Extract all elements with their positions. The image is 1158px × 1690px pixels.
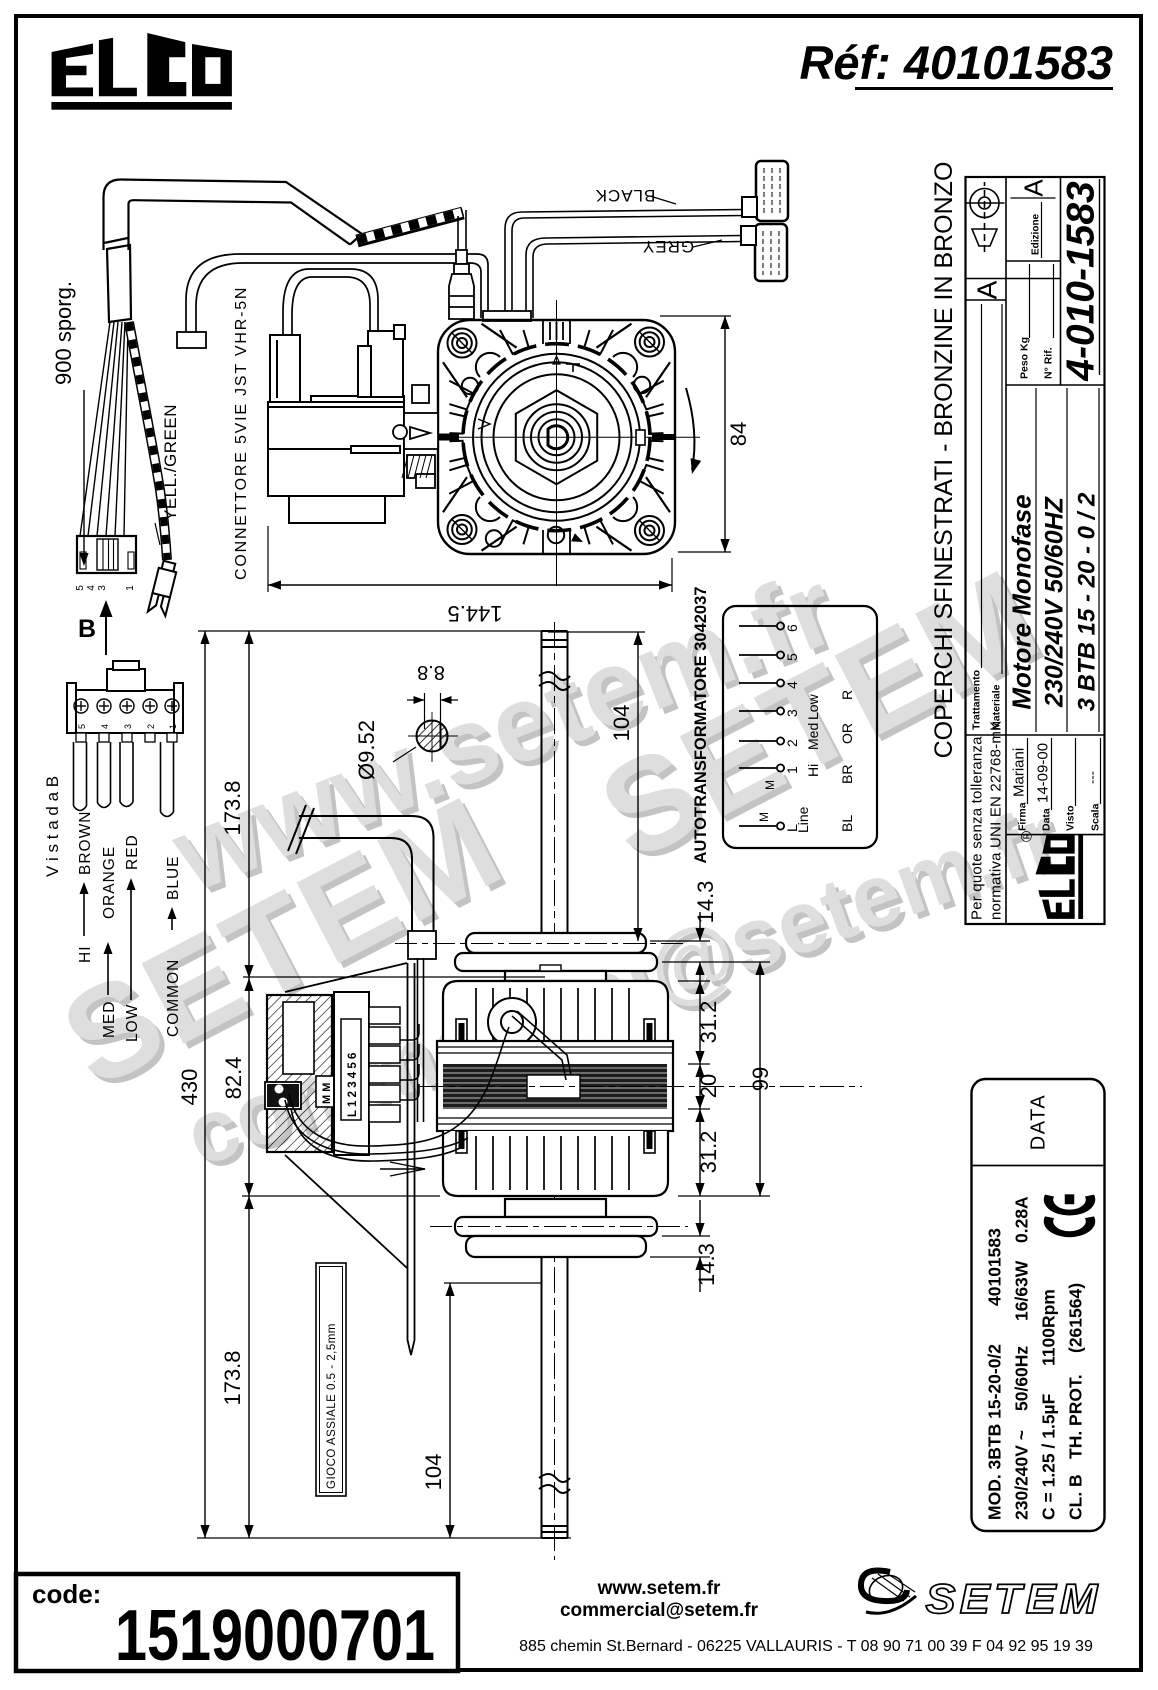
- svg-text:normativa UNI EN 22768-mK: normativa UNI EN 22768-mK: [988, 721, 1005, 920]
- svg-text:Data: Data: [1041, 808, 1053, 831]
- svg-text:BLACK: BLACK: [595, 186, 656, 205]
- svg-text:ORANGE: ORANGE: [101, 846, 118, 919]
- svg-text:Edizione: Edizione: [1031, 213, 1042, 255]
- svg-text:MED: MED: [101, 1001, 118, 1038]
- svg-text:(261564): (261564): [1066, 1283, 1086, 1353]
- svg-text:40101583: 40101583: [985, 1228, 1005, 1306]
- svg-text:0.28A: 0.28A: [1012, 1196, 1032, 1243]
- svg-text:Mariani: Mariani: [1011, 748, 1028, 797]
- svg-text:Trattamento: Trattamento: [971, 670, 983, 730]
- svg-text:31.2: 31.2: [696, 1001, 721, 1044]
- svg-text:C = 1.25 / 1.5µF: C = 1.25 / 1.5µF: [1039, 1393, 1059, 1520]
- svg-text:885 chemin St.Bernard - 0622: 885 chemin St.Bernard - 06225 VALLAURIS …: [519, 1638, 1093, 1655]
- svg-text:Med: Med: [805, 723, 821, 750]
- svg-text:20: 20: [696, 1074, 721, 1098]
- svg-text:N° Rif.: N° Rif.: [1043, 347, 1055, 379]
- svg-text:COMMON: COMMON: [165, 959, 182, 1037]
- svg-text:®: ®: [1019, 831, 1036, 842]
- svg-text:Peso Kg: Peso Kg: [1019, 337, 1031, 379]
- svg-text:31.2: 31.2: [696, 1131, 721, 1174]
- svg-text:1100Rpm: 1100Rpm: [1039, 1289, 1059, 1366]
- svg-text:104: 104: [421, 1454, 446, 1491]
- svg-text:LOW: LOW: [124, 1004, 141, 1042]
- svg-text:173.8: 173.8: [220, 780, 245, 835]
- svg-text:14.3: 14.3: [694, 1243, 719, 1286]
- svg-text:V i s t a d a B: V i s t a d a B: [43, 776, 62, 877]
- svg-text:Ø9.52: Ø9.52: [354, 720, 379, 780]
- svg-text:BROWN: BROWN: [77, 811, 94, 875]
- svg-text:6: 6: [784, 624, 800, 632]
- svg-text:CL. B: CL. B: [1066, 1474, 1086, 1520]
- svg-text:TH. PROT.: TH. PROT.: [1066, 1374, 1086, 1459]
- svg-text:---: ---: [1085, 771, 1100, 784]
- svg-text:Scala: Scala: [1090, 803, 1102, 831]
- svg-text:99: 99: [748, 1067, 773, 1091]
- svg-text:BL: BL: [839, 815, 855, 832]
- svg-text:5: 5: [75, 585, 86, 591]
- svg-text:82.4: 82.4: [221, 1057, 246, 1100]
- svg-text:A: A: [1019, 179, 1049, 197]
- svg-text:5: 5: [784, 653, 800, 661]
- svg-text:1519000701: 1519000701: [115, 1596, 435, 1676]
- svg-text:4: 4: [86, 585, 97, 591]
- svg-text:173.8: 173.8: [220, 1350, 245, 1405]
- svg-text:8.8: 8.8: [417, 661, 445, 683]
- svg-text:BLUE: BLUE: [165, 856, 182, 901]
- svg-text:1: 1: [125, 585, 136, 591]
- svg-text:104: 104: [609, 705, 634, 742]
- svg-text:14.3: 14.3: [693, 881, 718, 924]
- svg-text:Materiale: Materiale: [991, 684, 1003, 730]
- svg-text:commercial@setem.fr: commercial@setem.fr: [560, 1600, 759, 1621]
- svg-text:1: 1: [168, 724, 178, 729]
- svg-text:3: 3: [784, 709, 800, 717]
- svg-text:HI: HI: [77, 946, 94, 964]
- svg-text:MOD. 3BTB 15-20-0/2: MOD. 3BTB 15-20-0/2: [985, 1344, 1005, 1520]
- svg-text:84: 84: [726, 422, 751, 446]
- svg-text:14-09-00: 14-09-00: [1035, 743, 1052, 803]
- svg-text:code:: code:: [32, 1579, 101, 1609]
- svg-text:4-010-1583: 4-010-1583: [1060, 181, 1103, 382]
- svg-text:Low: Low: [805, 693, 821, 720]
- svg-text:Line: Line: [795, 806, 811, 833]
- svg-text:RED: RED: [124, 834, 141, 870]
- svg-text:GREY: GREY: [642, 237, 694, 256]
- svg-text:AUTOTRANSFORMATORE 3042037: AUTOTRANSFORMATORE 3042037: [692, 587, 710, 864]
- svg-text:Per quote senza tolleranza: Per quote senza tolleranza: [969, 736, 986, 920]
- svg-text:2: 2: [146, 724, 156, 729]
- svg-text:1: 1: [784, 766, 800, 774]
- svg-text:Firma: Firma: [1017, 802, 1029, 831]
- svg-text:www.setem.fr: www.setem.fr: [597, 1578, 721, 1599]
- svg-text:Réf: 40101583: Réf: 40101583: [799, 36, 1113, 89]
- svg-text:DATA: DATA: [1028, 1094, 1050, 1150]
- svg-text:430: 430: [177, 1069, 202, 1106]
- svg-text:2: 2: [784, 739, 800, 747]
- svg-text:16/63W: 16/63W: [1012, 1260, 1032, 1321]
- svg-text:3: 3: [97, 585, 108, 591]
- svg-text:L 1 2 3 4 5 6: L 1 2 3 4 5 6: [347, 1053, 359, 1117]
- svg-text:4: 4: [100, 724, 110, 729]
- svg-text:3 BTB 15 - 20 - 0 / 2: 3 BTB 15 - 20 - 0 / 2: [1074, 492, 1101, 711]
- svg-text:A: A: [972, 280, 1003, 299]
- svg-text:Visto: Visto: [1065, 806, 1077, 831]
- svg-text:M: M: [757, 812, 771, 822]
- svg-text:Hi: Hi: [805, 764, 821, 777]
- svg-text:Motore Monofase: Motore Monofase: [1007, 494, 1037, 709]
- svg-text:CONNETTORE 5VIE JST VHR-5N: CONNETTORE 5VIE JST VHR-5N: [233, 286, 250, 580]
- svg-text:144.5: 144.5: [447, 601, 502, 626]
- svg-text:900 sporg.: 900 sporg.: [51, 281, 76, 385]
- svg-text:4: 4: [784, 681, 800, 689]
- svg-text:GIOCO ASSIALE 0.5 - 2,5mm: GIOCO ASSIALE 0.5 - 2,5mm: [326, 1323, 338, 1489]
- svg-text:BR: BR: [839, 765, 855, 784]
- svg-text:B: B: [78, 615, 96, 643]
- svg-text:M: M: [763, 780, 777, 790]
- svg-text:3: 3: [123, 724, 133, 729]
- svg-text:230/240V ~: 230/240V ~: [1012, 1430, 1032, 1520]
- svg-text:COPERCHI SFINESTRATI - BRONZ: COPERCHI SFINESTRATI - BRONZINE IN BRONZ…: [930, 162, 958, 759]
- svg-text:230/240V 50/60HZ: 230/240V 50/60HZ: [1041, 495, 1069, 708]
- svg-text:R: R: [839, 690, 855, 700]
- svg-text:50/60Hz: 50/60Hz: [1012, 1346, 1032, 1411]
- svg-text:M M: M M: [321, 1083, 333, 1104]
- svg-text:YELL./GREEN: YELL./GREEN: [161, 404, 180, 521]
- svg-text:SETEM: SETEM: [926, 1576, 1102, 1622]
- svg-text:OR: OR: [839, 723, 855, 744]
- svg-text:5: 5: [77, 724, 87, 729]
